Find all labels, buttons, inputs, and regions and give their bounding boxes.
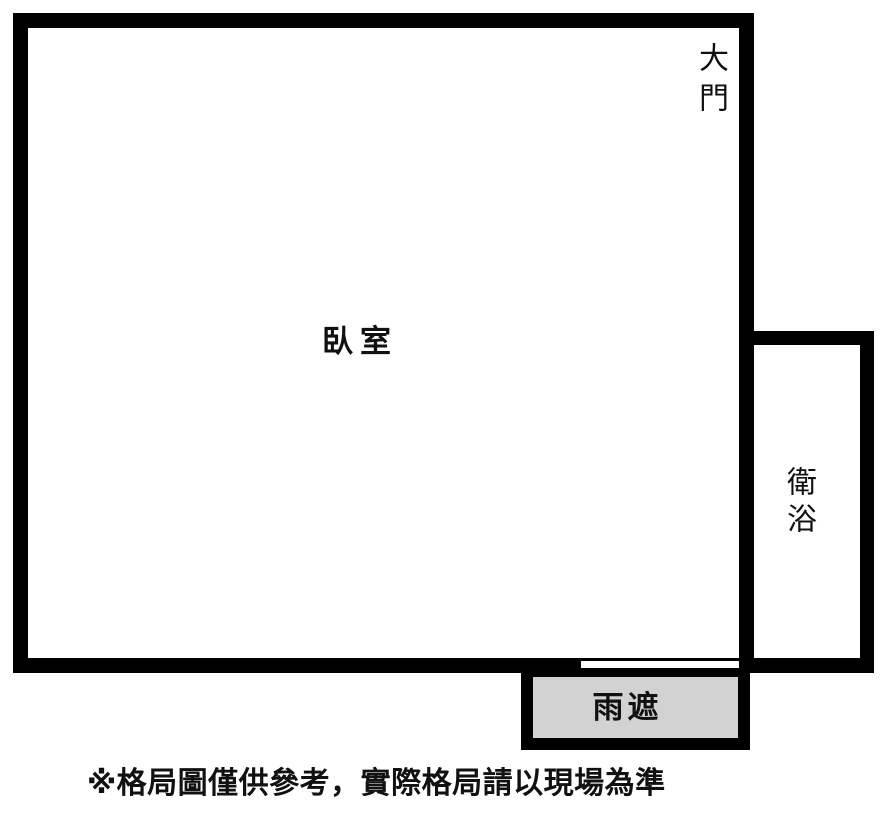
- disclaimer-text: ※格局圖僅供參考，實際格局請以現場為準: [87, 769, 666, 799]
- bathroom-right-wall: [860, 331, 874, 673]
- bathroom-bottom-wall: [739, 658, 874, 673]
- main-room-bottom-wall: [13, 658, 581, 673]
- bathroom-top-wall: [754, 331, 874, 345]
- main-room-top-wall: [13, 13, 754, 28]
- bathroom-label: 衛浴: [783, 466, 813, 540]
- main-room-right-wall: [739, 13, 754, 673]
- window-symbol: [581, 658, 739, 673]
- floor-plan-canvas: 雨遮 臥室 大門 衛浴 ※格局圖僅供參考，實際格局請以現場為準: [0, 0, 889, 820]
- awning-box: 雨遮: [521, 672, 750, 750]
- bedroom-label: 臥室: [322, 326, 398, 357]
- main-room-left-wall: [13, 13, 28, 673]
- main-door-label: 大門: [695, 42, 725, 122]
- awning-label: 雨遮: [593, 692, 663, 723]
